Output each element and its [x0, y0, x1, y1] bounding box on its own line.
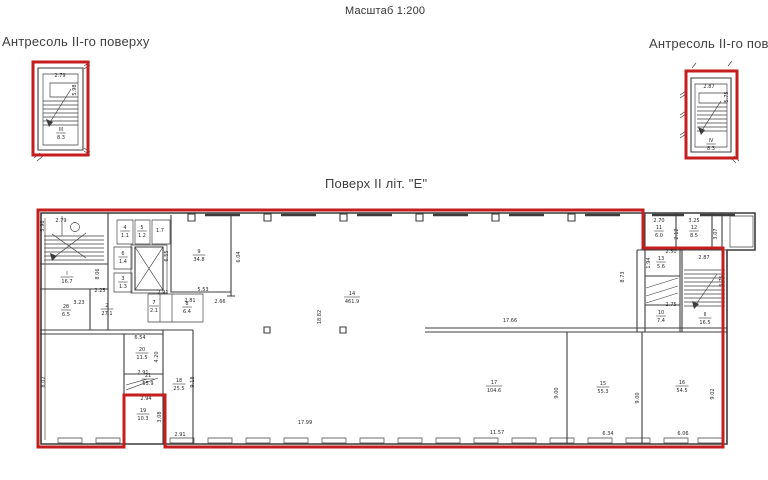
svg-text:18.82: 18.82: [317, 310, 323, 324]
svg-text:10: 10: [658, 310, 664, 316]
svg-text:11: 11: [656, 225, 662, 231]
svg-text:5.53: 5.53: [197, 287, 208, 293]
svg-text:10.3: 10.3: [137, 416, 148, 422]
svg-text:17.66: 17.66: [503, 318, 517, 324]
svg-text:8.02: 8.02: [41, 376, 47, 387]
svg-text:2.91: 2.91: [174, 432, 185, 438]
room-label: 2б6.5: [61, 304, 71, 318]
dim-label: 9.02: [710, 388, 716, 399]
svg-text:9.00: 9.00: [635, 392, 641, 403]
svg-text:19: 19: [140, 408, 146, 414]
svg-text:5: 5: [140, 225, 143, 231]
svg-text:104.6: 104.6: [487, 388, 501, 394]
dim-label: 5.98: [72, 84, 78, 95]
dim-label: 8.06: [95, 268, 101, 279]
svg-text:9.02: 9.02: [710, 388, 716, 399]
svg-text:27.1: 27.1: [101, 311, 112, 317]
room-label: 135.6: [656, 256, 666, 270]
dim-label: 6.06: [677, 431, 688, 437]
dim-label: 6.55: [164, 250, 170, 261]
dim-label: 2.50: [665, 249, 676, 255]
svg-text:2.70: 2.70: [653, 218, 664, 224]
dim-label: 5.98: [40, 220, 46, 231]
svg-text:6.55: 6.55: [164, 250, 170, 261]
dim-label: 2.87: [698, 255, 709, 261]
room-label: 1910.3: [137, 408, 150, 422]
dim-label: 3.08: [157, 411, 163, 422]
svg-text:5.98: 5.98: [72, 84, 78, 95]
svg-text:8.3: 8.3: [707, 146, 715, 152]
svg-text:2.87: 2.87: [703, 84, 714, 90]
svg-text:2.12: 2.12: [674, 228, 680, 239]
svg-text:2.1: 2.1: [150, 308, 158, 314]
room-label: 227.1: [101, 303, 114, 317]
dim-label: 2.87: [703, 84, 714, 90]
svg-text:6.06: 6.06: [677, 431, 688, 437]
svg-text:4: 4: [123, 225, 126, 231]
svg-text:55.3: 55.3: [597, 389, 608, 395]
dim-label: 17.66: [503, 318, 517, 324]
dim-label: 17.99: [298, 420, 312, 426]
svg-text:8.5: 8.5: [690, 233, 698, 239]
dim-label: 2.75: [665, 302, 676, 308]
dim-label: 6.04: [236, 251, 242, 262]
dim-label: 2.79: [55, 218, 66, 224]
room-label: 14461.9: [344, 291, 360, 305]
dim-label: 8.73: [620, 271, 626, 282]
dim-label: 4.20: [154, 351, 160, 362]
svg-text:14: 14: [349, 291, 355, 297]
svg-text:6.04: 6.04: [236, 251, 242, 262]
svg-text:11.5: 11.5: [136, 355, 147, 361]
svg-text:6.34: 6.34: [602, 431, 613, 437]
svg-text:6.5: 6.5: [62, 312, 70, 318]
svg-text:25.5: 25.5: [173, 386, 184, 392]
svg-text:8: 8: [185, 301, 188, 307]
svg-text:3.08: 3.08: [157, 411, 163, 422]
dim-label: 6.54: [134, 335, 145, 341]
room-label: 107.4: [656, 310, 666, 324]
svg-text:1.4: 1.4: [119, 259, 127, 265]
svg-text:5.6: 5.6: [657, 264, 665, 270]
svg-text:IV: IV: [709, 138, 714, 144]
room-label: 128.5: [689, 225, 699, 239]
svg-text:21: 21: [145, 373, 151, 379]
svg-text:1.3: 1.3: [119, 284, 127, 290]
room-label: II16.5: [699, 312, 712, 326]
svg-text:2.91: 2.91: [157, 290, 168, 296]
dim-label: 6.34: [602, 431, 613, 437]
svg-text:2.66: 2.66: [214, 299, 225, 305]
svg-text:2: 2: [105, 303, 108, 309]
svg-text:54.5: 54.5: [676, 388, 687, 394]
svg-text:1.2: 1.2: [138, 233, 146, 239]
svg-text:9: 9: [197, 249, 200, 255]
dim-label: 3.07: [713, 228, 719, 239]
svg-text:3.07: 3.07: [713, 228, 719, 239]
floor-plan-drawing: 2.795.982.875.752.795.988.062.253.236.55…: [0, 0, 768, 480]
dim-label: 5.75: [724, 91, 730, 102]
svg-text:3.23: 3.23: [73, 300, 84, 306]
svg-text:16: 16: [679, 380, 685, 386]
dim-label: 8.02: [41, 376, 47, 387]
svg-text:5.98: 5.98: [40, 220, 46, 231]
svg-text:12: 12: [691, 225, 697, 231]
dim-label: 9.18: [190, 376, 196, 387]
svg-text:2.50: 2.50: [665, 249, 676, 255]
grid-bubble-icon: [71, 223, 80, 232]
svg-text:2.25: 2.25: [94, 288, 105, 294]
room-label: 934.8: [193, 249, 206, 263]
svg-text:11.57: 11.57: [490, 430, 504, 436]
svg-text:6.54: 6.54: [134, 335, 145, 341]
svg-text:8.3: 8.3: [57, 135, 65, 141]
dim-label: 5.53: [197, 287, 208, 293]
svg-text:6.0: 6.0: [655, 233, 663, 239]
svg-text:1.7: 1.7: [156, 228, 164, 234]
svg-text:7: 7: [152, 300, 155, 306]
window-band-bottom: [58, 438, 722, 443]
svg-text:6: 6: [121, 251, 124, 257]
svg-text:2.94: 2.94: [140, 396, 151, 402]
svg-text:55.9: 55.9: [142, 381, 153, 387]
dim-label: 2.94: [140, 396, 151, 402]
svg-text:8.06: 8.06: [95, 268, 101, 279]
svg-text:2.79: 2.79: [54, 73, 65, 79]
svg-text:1.1: 1.1: [121, 233, 129, 239]
room-label: 1555.3: [597, 381, 610, 395]
svg-text:34.8: 34.8: [193, 257, 204, 263]
drawing-sheet: Масштаб 1:200 Антресоль II-го поверху Ан…: [0, 0, 768, 480]
svg-text:16.7: 16.7: [61, 279, 72, 285]
dim-label: 2.66: [214, 299, 225, 305]
room-label: 2011.5: [136, 347, 149, 361]
dim-label: 2.91: [174, 432, 185, 438]
dim-label: 11.57: [490, 430, 504, 436]
dim-label: 3.23: [73, 300, 84, 306]
svg-text:461.9: 461.9: [345, 299, 359, 305]
svg-text:4.20: 4.20: [154, 351, 160, 362]
svg-text:2б: 2б: [63, 304, 69, 310]
annotation-layer: 2.795.982.875.752.795.988.062.253.236.55…: [40, 73, 730, 438]
svg-text:5.75: 5.75: [719, 275, 725, 286]
dim-label: 5.75: [719, 275, 725, 286]
dim-label: 9.00: [554, 387, 560, 398]
room-label: III8.3: [56, 127, 66, 141]
dim-label: 2.91: [157, 290, 168, 296]
room-label: 31.3: [118, 276, 128, 290]
svg-text:3.25: 3.25: [688, 218, 699, 224]
svg-text:2.87: 2.87: [698, 255, 709, 261]
room-label: 1825.5: [173, 378, 186, 392]
svg-text:1.94: 1.94: [646, 257, 652, 268]
svg-text:III: III: [59, 127, 63, 133]
ramp-lines: [646, 278, 678, 303]
svg-text:7.4: 7.4: [657, 318, 665, 324]
dim-label: 2.79: [54, 73, 65, 79]
svg-text:8.73: 8.73: [620, 271, 626, 282]
dim-label: 1.7: [156, 228, 164, 234]
room-label: 116.0: [654, 225, 664, 239]
svg-text:9.18: 9.18: [190, 376, 196, 387]
dim-label: 1.94: [646, 257, 652, 268]
room-label: 61.4: [118, 251, 128, 265]
room-label: 17104.6: [486, 380, 502, 394]
svg-text:15: 15: [600, 381, 606, 387]
svg-text:II: II: [704, 312, 707, 318]
room-label: 41.1: [120, 225, 130, 239]
svg-text:9.00: 9.00: [554, 387, 560, 398]
svg-text:6.4: 6.4: [183, 309, 191, 315]
dim-label: 18.82: [317, 310, 323, 324]
stair-direction-arrow: [701, 101, 721, 132]
svg-text:5.75: 5.75: [724, 91, 730, 102]
dim-label: 3.25: [688, 218, 699, 224]
dim-label: 2.70: [653, 218, 664, 224]
svg-text:18: 18: [176, 378, 182, 384]
dim-label: 2.25: [94, 288, 105, 294]
stair-direction-arrow: [49, 89, 71, 124]
svg-text:17.99: 17.99: [298, 420, 312, 426]
room-label: 51.2: [137, 225, 147, 239]
room-label: 72.1: [149, 300, 159, 314]
room-label: IV8.3: [706, 138, 716, 152]
dim-label: 9.00: [635, 392, 641, 403]
svg-text:3: 3: [121, 276, 124, 282]
dim-label: 2.12: [674, 228, 680, 239]
room-label: I16.7: [61, 271, 74, 285]
room-label: 1654.5: [676, 380, 689, 394]
svg-text:16.5: 16.5: [699, 320, 710, 326]
svg-text:17: 17: [491, 380, 497, 386]
column-marks: [264, 327, 346, 333]
svg-text:13: 13: [658, 256, 664, 262]
svg-text:2.75: 2.75: [665, 302, 676, 308]
svg-text:2.79: 2.79: [55, 218, 66, 224]
svg-text:20: 20: [139, 347, 145, 353]
svg-text:I: I: [66, 271, 67, 277]
